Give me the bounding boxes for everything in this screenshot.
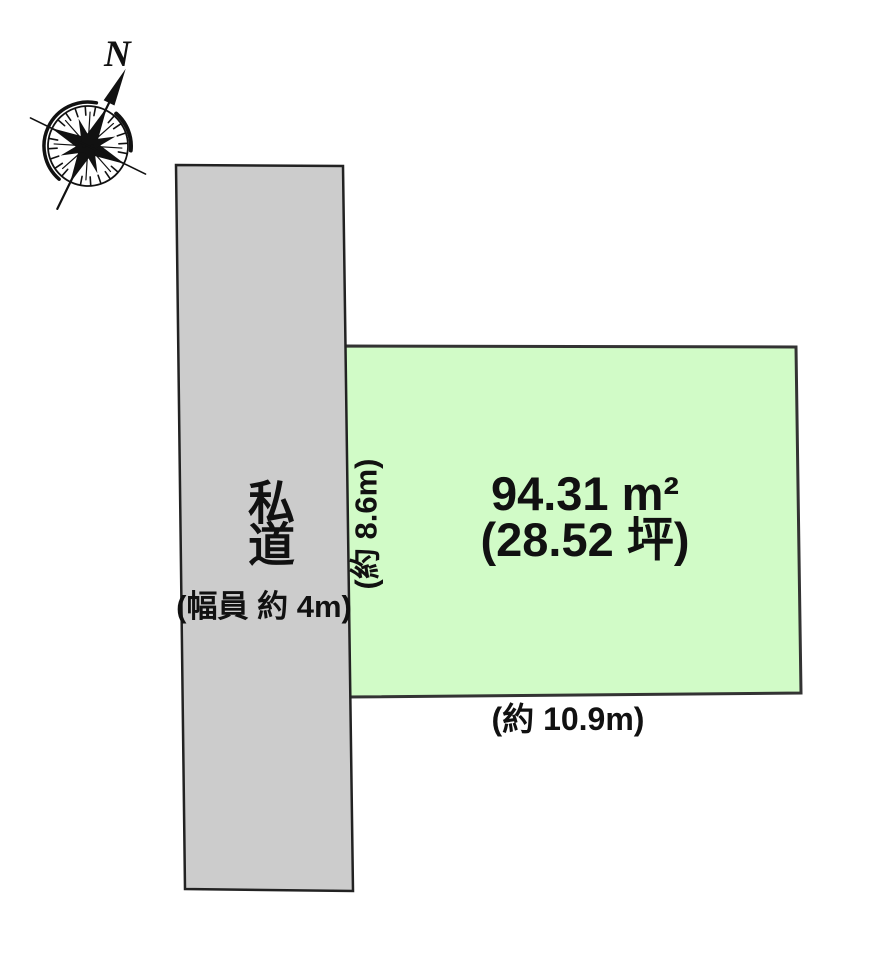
parcel-left-dimension-label: (約 8.6m) — [341, 459, 386, 590]
private-road-label: 私道 — [244, 478, 291, 562]
road-width-label: (幅員 約 4m) — [168, 581, 360, 626]
parcel-area-block: 94.31 m² (28.52 坪) — [390, 471, 780, 563]
parcel-bottom-dimension-label: (約 10.9m) — [418, 694, 718, 740]
site-plan: N 私道 (幅員 約 4m) 94.31 m² (28.52 坪) (約 8.6… — [0, 0, 880, 966]
parcel-area-sqm: 94.31 m² — [390, 471, 780, 517]
parcel-area-tsubo: (28.52 坪) — [390, 517, 780, 563]
compass-north-label: N — [104, 36, 131, 73]
compass-rose-icon — [0, 41, 183, 237]
